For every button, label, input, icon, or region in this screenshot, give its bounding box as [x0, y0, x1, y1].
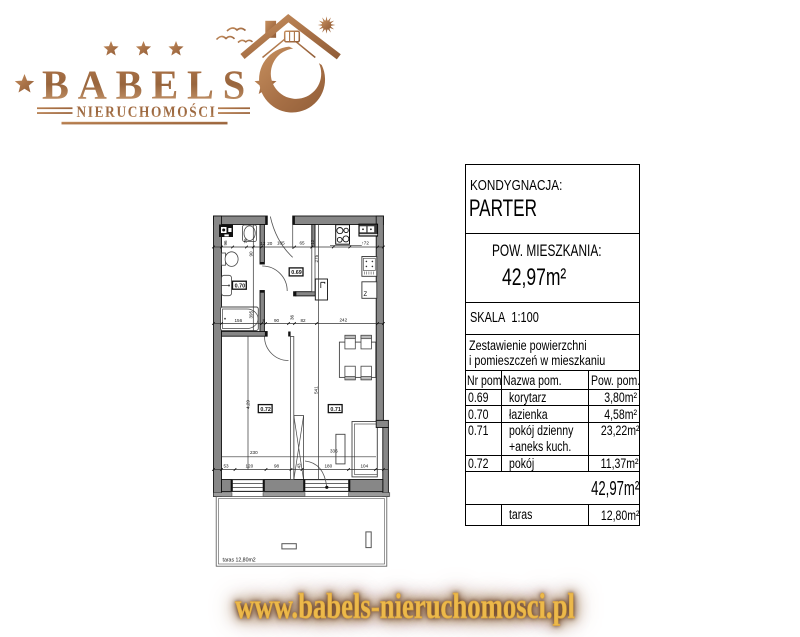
svg-text:120: 120 [246, 464, 254, 469]
svg-text:taras 12,80m2: taras 12,80m2 [223, 558, 256, 564]
svg-text:395: 395 [248, 310, 253, 318]
svg-text:43: 43 [297, 463, 302, 469]
svg-text:0.70: 0.70 [235, 284, 246, 290]
svg-text:180: 180 [325, 464, 333, 469]
svg-text:76: 76 [243, 238, 248, 244]
svg-text:0.71: 0.71 [330, 407, 341, 413]
svg-text:98: 98 [274, 464, 280, 469]
svg-text:4,29: 4,29 [246, 400, 251, 409]
svg-text:105: 105 [277, 240, 285, 245]
svg-text:NIERUCHOMOŚCI: NIERUCHOMOŚCI [77, 102, 217, 121]
svg-text:242: 242 [340, 318, 348, 323]
svg-text:541: 541 [314, 386, 319, 394]
svg-text:96: 96 [223, 240, 228, 246]
svg-text:90: 90 [274, 318, 280, 323]
svg-text:36: 36 [290, 314, 295, 320]
svg-text:336: 336 [330, 448, 338, 453]
svg-text:65: 65 [300, 240, 306, 245]
svg-text:0.72: 0.72 [260, 407, 271, 413]
svg-text:↑72: ↑72 [362, 241, 370, 246]
svg-text:90: 90 [248, 251, 253, 257]
svg-text:82: 82 [301, 318, 307, 323]
svg-text:156: 156 [235, 318, 243, 323]
svg-text:275: 275 [314, 254, 319, 262]
svg-text:8: 8 [263, 318, 266, 323]
svg-text:12: 12 [260, 241, 266, 246]
svg-text:53: 53 [224, 464, 230, 469]
svg-text:104: 104 [361, 464, 369, 469]
svg-text:12: 12 [310, 239, 315, 245]
svg-text:20: 20 [267, 241, 273, 246]
svg-text:0.69: 0.69 [291, 270, 302, 276]
svg-text:BABELS: BABELS [42, 61, 254, 107]
svg-text:Z: Z [364, 292, 368, 298]
svg-text:230: 230 [250, 450, 258, 455]
